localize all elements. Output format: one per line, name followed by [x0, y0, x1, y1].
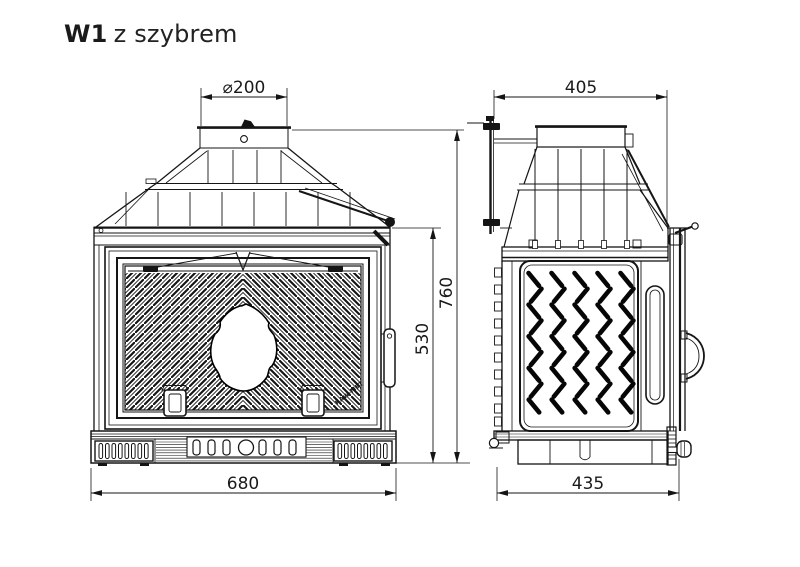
front-top-band	[94, 227, 390, 245]
zigzag-fin-panel	[520, 261, 638, 431]
front-hood	[96, 148, 395, 245]
dim-label-flue-diameter: ⌀200	[223, 78, 266, 98]
side-door-edge	[641, 228, 687, 431]
door-latch-knob-left[interactable]	[162, 386, 188, 417]
air-control-knob[interactable]	[239, 440, 254, 455]
dim-base-depth: 435	[497, 459, 679, 501]
drawing-page: W1z szybrem	[0, 0, 800, 567]
dim-front-width: 680	[91, 468, 396, 501]
airwash-bar	[128, 252, 358, 272]
front-glass: KAW-MET	[125, 266, 366, 410]
dim-label-overall-height: 760	[437, 277, 457, 309]
side-body	[495, 223, 705, 431]
front-base	[91, 431, 396, 466]
dim-label-front-width: 680	[227, 474, 259, 494]
dim-flue-diameter: ⌀200	[201, 78, 287, 126]
dim-label-top-depth: 405	[565, 78, 597, 98]
title-suffix: z szybrem	[114, 20, 238, 48]
hood-ribs-upper	[208, 150, 281, 183]
damper-control-rod	[467, 116, 537, 234]
side-hood	[504, 147, 669, 248]
side-flue-collar	[535, 126, 633, 147]
side-hood-ribs	[535, 149, 627, 246]
front-door-handle[interactable]	[381, 329, 395, 387]
dim-label-firebox-height: 530	[413, 323, 433, 355]
front-flue-collar	[197, 120, 291, 149]
door-latch-knob-right[interactable]	[300, 386, 326, 417]
side-base	[489, 427, 691, 465]
right-vent-grille	[334, 441, 392, 461]
ash-drawer-panel	[187, 437, 306, 457]
dim-label-base-depth: 435	[572, 474, 604, 494]
dim-firebox-height: 530	[392, 228, 441, 463]
front-view: KAW-MET	[91, 120, 396, 467]
technical-drawing: KAW-MET	[0, 0, 800, 567]
side-view	[467, 116, 704, 465]
model-name: W1	[64, 20, 108, 48]
damper-lever	[299, 188, 395, 245]
damper-knob	[241, 120, 255, 128]
drawing-title: W1z szybrem	[64, 20, 238, 48]
left-vent-grille	[95, 441, 153, 461]
side-left-strip	[495, 261, 513, 431]
